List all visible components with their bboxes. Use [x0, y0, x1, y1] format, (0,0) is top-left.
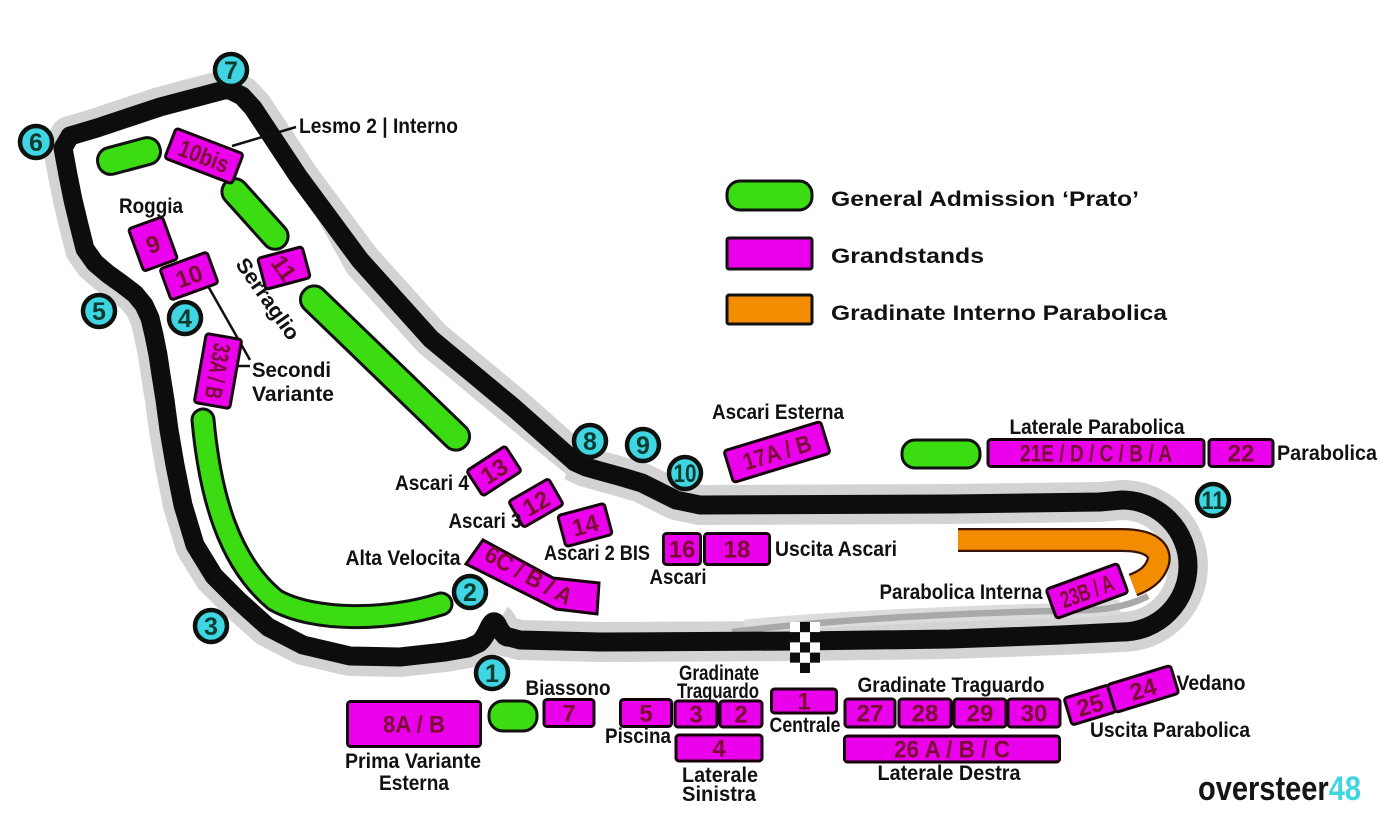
svg-text:10: 10	[674, 460, 697, 488]
svg-text:Centrale: Centrale	[770, 714, 841, 737]
svg-text:Piscina: Piscina	[605, 725, 671, 748]
svg-text:Uscita Parabolica: Uscita Parabolica	[1090, 719, 1250, 742]
svg-text:1: 1	[797, 689, 810, 716]
svg-text:8A / B: 8A / B	[383, 712, 445, 739]
svg-text:5: 5	[92, 298, 106, 326]
svg-text:Laterale Destra: Laterale Destra	[878, 762, 1021, 785]
svg-text:oversteer48: oversteer48	[1198, 770, 1361, 808]
svg-text:Roggia: Roggia	[119, 195, 183, 218]
svg-text:Gradinate Interno Parabolica: Gradinate Interno Parabolica	[831, 302, 1167, 325]
svg-text:21E / D / C / B / A: 21E / D / C / B / A	[1020, 441, 1172, 468]
svg-text:Biassono: Biassono	[526, 677, 611, 700]
svg-text:16: 16	[669, 537, 696, 564]
svg-text:Ascari 4: Ascari 4	[395, 472, 469, 495]
svg-text:Uscita Ascari: Uscita Ascari	[775, 538, 897, 561]
svg-text:Grandstands: Grandstands	[831, 245, 984, 268]
svg-text:26 A / B / C: 26 A / B / C	[894, 737, 1010, 764]
svg-text:8: 8	[583, 428, 597, 456]
svg-text:27: 27	[857, 701, 884, 728]
svg-text:Ascari 3: Ascari 3	[449, 510, 522, 533]
svg-text:Vedano: Vedano	[1177, 672, 1246, 695]
svg-text:3: 3	[689, 702, 702, 729]
svg-text:22: 22	[1228, 441, 1255, 468]
svg-text:2: 2	[734, 702, 747, 729]
svg-text:Secondi: Secondi	[252, 359, 331, 382]
svg-text:28: 28	[912, 701, 939, 728]
svg-text:Esterna: Esterna	[379, 772, 449, 795]
svg-text:5: 5	[639, 701, 652, 728]
svg-text:Prima Variante: Prima Variante	[345, 750, 481, 773]
svg-text:Variante: Variante	[252, 383, 334, 406]
svg-text:Ascari Esterna: Ascari Esterna	[712, 401, 844, 424]
svg-text:30: 30	[1021, 701, 1048, 728]
svg-text:9: 9	[636, 432, 650, 460]
svg-text:Gradinate Traguardo: Gradinate Traguardo	[858, 674, 1045, 697]
svg-text:29: 29	[967, 701, 994, 728]
svg-text:6: 6	[29, 129, 43, 157]
svg-text:Sinistra: Sinistra	[682, 783, 756, 806]
svg-text:Traguardo: Traguardo	[677, 680, 759, 703]
svg-text:4: 4	[178, 305, 192, 333]
svg-text:11: 11	[1202, 487, 1225, 515]
svg-text:General Admission ‘Prato’: General Admission ‘Prato’	[831, 188, 1139, 211]
svg-text:4: 4	[712, 736, 726, 763]
svg-text:Ascari 2 BIS: Ascari 2 BIS	[544, 542, 650, 565]
svg-text:7: 7	[224, 57, 238, 85]
svg-text:Parabolica Interna: Parabolica Interna	[880, 581, 1043, 604]
svg-text:Alta Velocita: Alta Velocita	[346, 547, 461, 570]
svg-text:Parabolica: Parabolica	[1277, 442, 1377, 465]
svg-text:3: 3	[204, 613, 218, 641]
svg-text:18: 18	[724, 537, 751, 564]
svg-text:2: 2	[463, 579, 477, 607]
svg-text:7: 7	[562, 701, 575, 728]
svg-text:1: 1	[485, 660, 499, 688]
svg-text:Laterale Parabolica: Laterale Parabolica	[1010, 416, 1185, 439]
svg-text:Lesmo 2 | Interno: Lesmo 2 | Interno	[299, 115, 458, 138]
svg-text:Ascari: Ascari	[650, 566, 707, 589]
